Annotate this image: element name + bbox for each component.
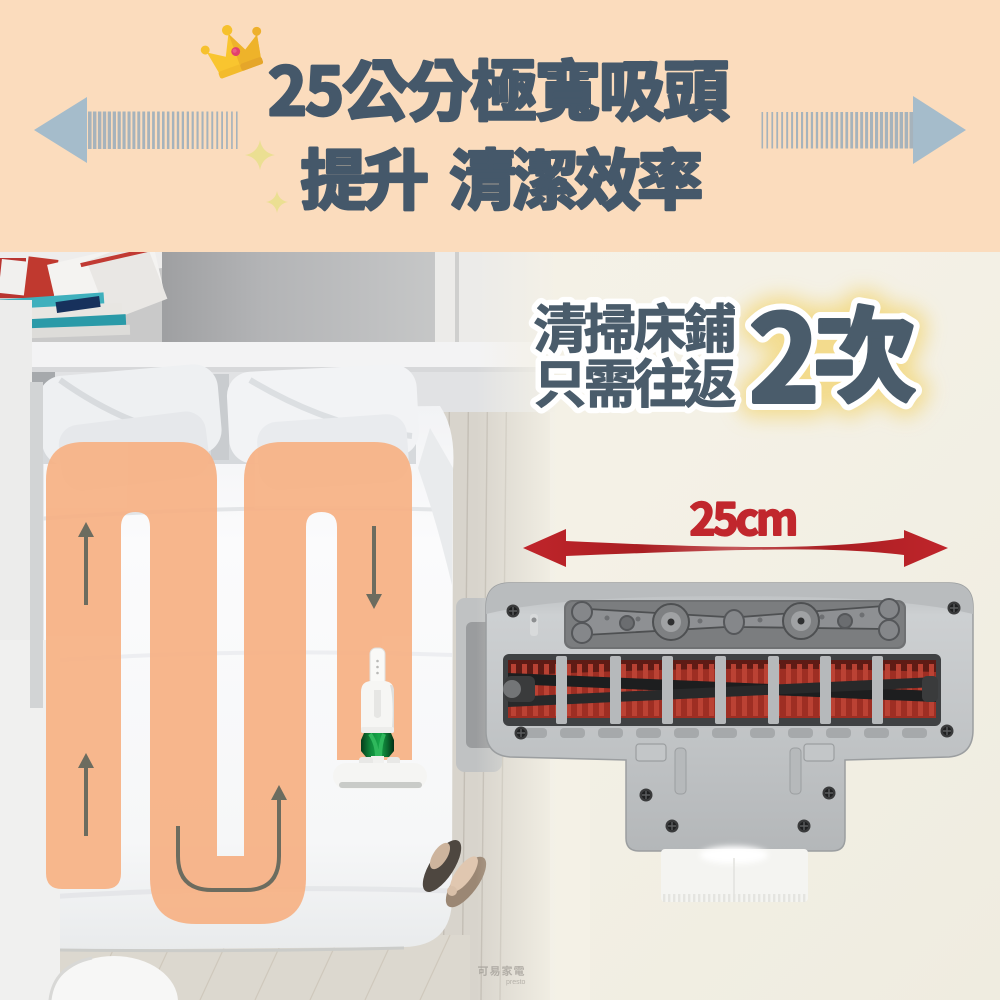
svg-text:presto: presto (506, 979, 526, 986)
